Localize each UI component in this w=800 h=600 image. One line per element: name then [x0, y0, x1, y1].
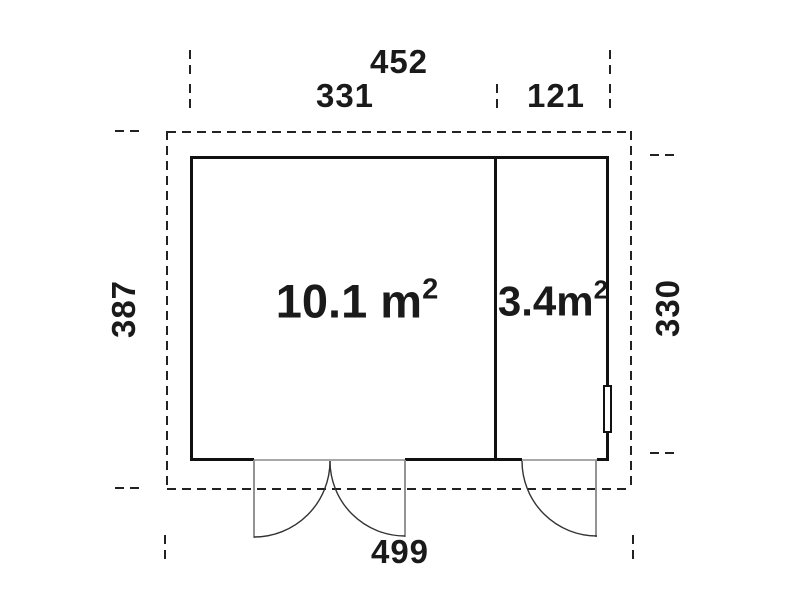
wall-bottom-left-segment	[190, 458, 254, 461]
wall-left	[190, 156, 193, 461]
dimension-left-side: 387	[105, 280, 143, 338]
tick-right-top	[650, 154, 675, 156]
tick-left-top	[115, 130, 143, 132]
side-room-area-value: 3.4m	[498, 278, 594, 325]
dimension-top-left-section: 331	[316, 77, 374, 115]
single-door-leaf	[595, 460, 597, 537]
main-room-area-label: 10.1 m2	[276, 274, 439, 329]
boundary-right-dashed-line	[630, 131, 632, 490]
boundary-top-dashed-line	[167, 131, 632, 133]
tick-top-left-upper	[189, 50, 191, 74]
single-door-swing-arc	[522, 461, 597, 536]
double-door-left-swing-arc	[254, 461, 330, 537]
wall-bottom-middle-segment	[405, 458, 522, 461]
tick-left-bottom	[115, 487, 143, 489]
double-door-right-leaf	[404, 460, 406, 537]
boundary-left-dashed-line	[166, 131, 168, 490]
main-room-area-superscript: 2	[422, 274, 438, 306]
wall-partition	[494, 156, 497, 461]
tick-right-bottom	[650, 452, 675, 454]
dimension-top-total: 452	[370, 43, 428, 81]
window-mark	[603, 385, 612, 433]
boundary-bottom-dashed-line	[167, 488, 632, 490]
main-room-area-value: 10.1 m	[276, 275, 422, 328]
double-door-threshold	[254, 459, 405, 461]
wall-top	[190, 156, 609, 159]
tick-bottom-right	[632, 535, 634, 559]
side-room-area-label: 3.4m2	[498, 277, 608, 326]
tick-bottom-left	[164, 535, 166, 559]
tick-top-right-lower	[609, 84, 611, 112]
side-room-area-superscript: 2	[594, 275, 608, 305]
tick-top-right-upper	[609, 50, 611, 74]
double-door-right-swing-arc	[330, 461, 405, 536]
double-door-left-leaf	[253, 460, 255, 538]
dimension-bottom-total: 499	[371, 533, 429, 571]
tick-top-left-lower	[189, 84, 191, 112]
single-door-threshold	[522, 459, 597, 461]
wall-bottom-right-segment	[597, 458, 609, 461]
floor-plan-canvas: 452 331 121 387 330 499 10.1 m2 3.4m2	[0, 0, 800, 600]
dimension-right-side: 330	[649, 279, 687, 337]
tick-top-middle	[496, 84, 498, 112]
dimension-top-right-section: 121	[527, 77, 585, 115]
